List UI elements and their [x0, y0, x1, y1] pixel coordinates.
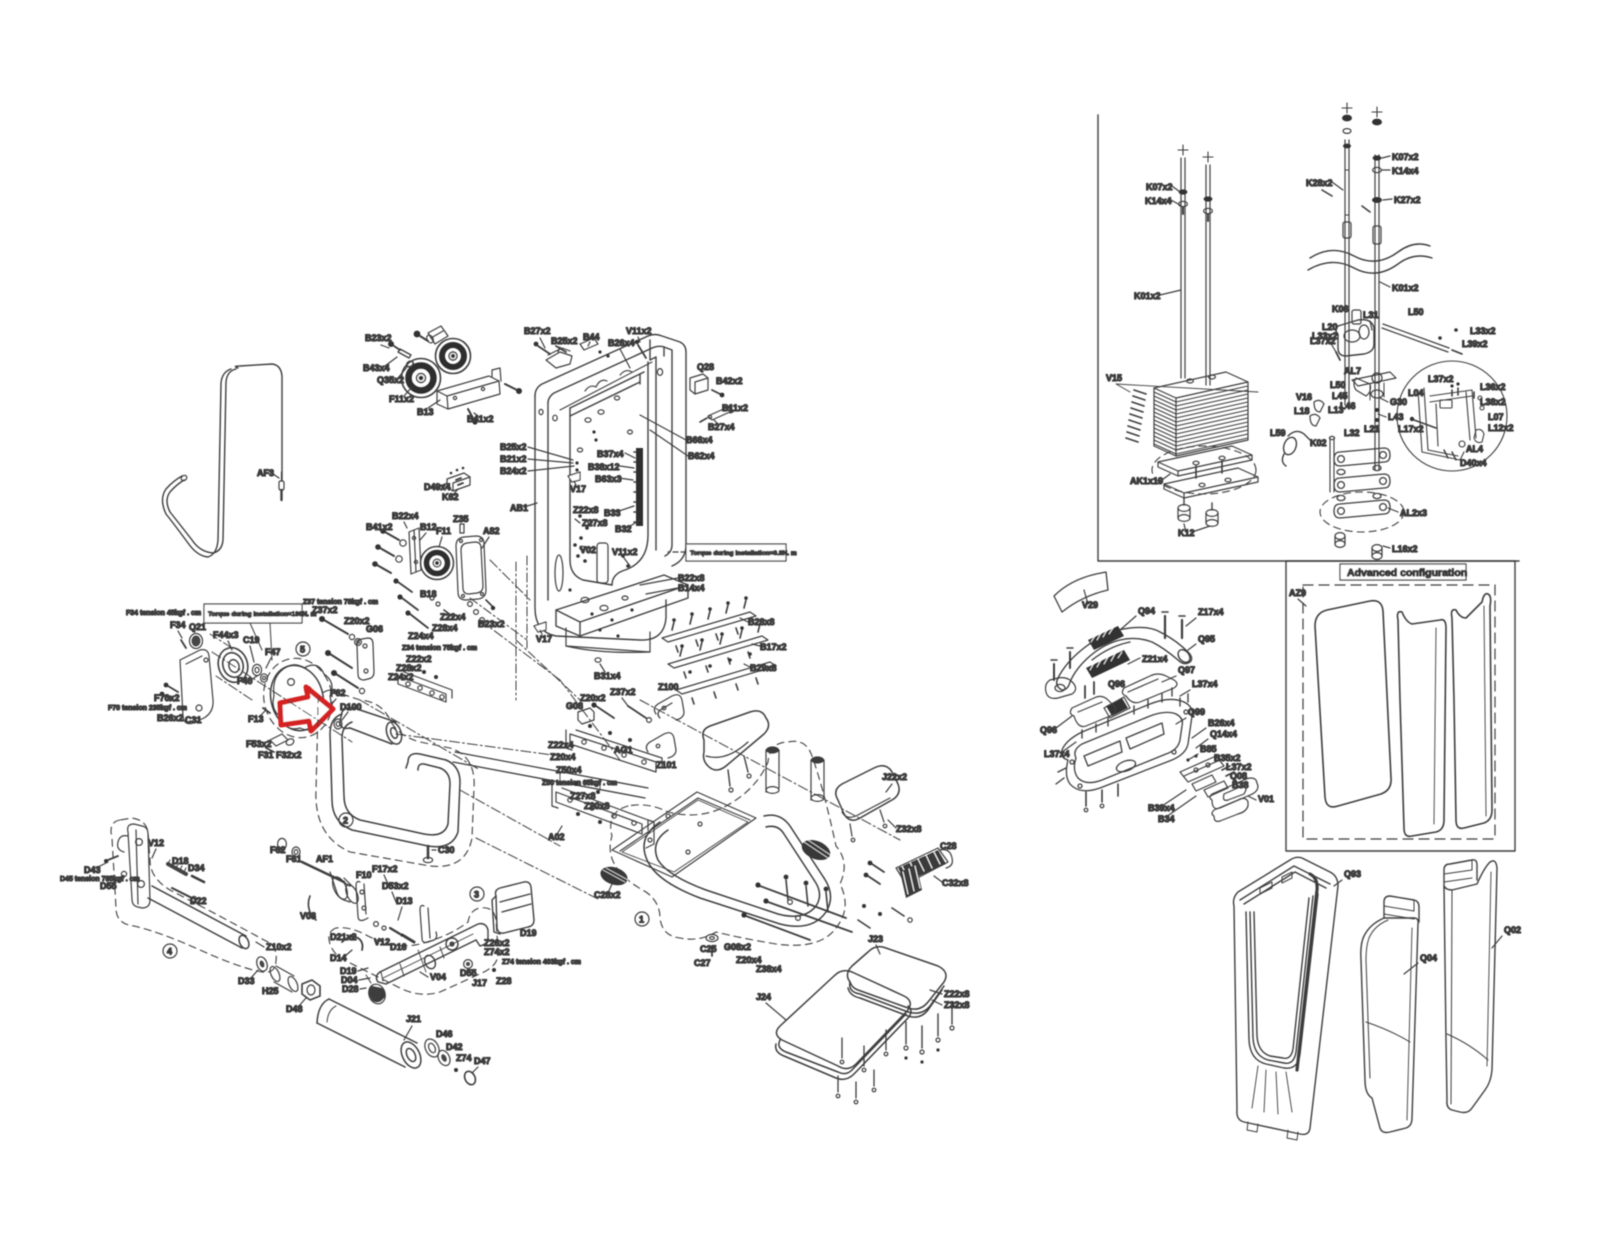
- svg-text:Q97: Q97: [1178, 665, 1195, 675]
- svg-text:Q94: Q94: [1138, 606, 1155, 616]
- svg-text:AF1: AF1: [316, 854, 333, 864]
- svg-text:Q95: Q95: [1198, 634, 1215, 644]
- svg-text:F11x2: F11x2: [389, 394, 414, 404]
- svg-text:V17: V17: [536, 634, 552, 644]
- svg-text:L36x2: L36x2: [1480, 382, 1506, 392]
- svg-text:Q04: Q04: [1420, 953, 1437, 963]
- svg-text:AL4: AL4: [1466, 444, 1483, 454]
- svg-text:C28x2: C28x2: [594, 890, 621, 900]
- svg-text:F62: F62: [270, 845, 286, 855]
- svg-text:Q14x4: Q14x4: [1210, 729, 1237, 739]
- svg-text:J24: J24: [756, 992, 771, 1002]
- svg-text:L04: L04: [1408, 388, 1424, 398]
- svg-text:L39x2: L39x2: [1462, 339, 1488, 349]
- svg-text:B14x4: B14x4: [678, 583, 705, 593]
- svg-text:K12: K12: [1178, 528, 1195, 538]
- svg-text:V17: V17: [570, 484, 586, 494]
- svg-text:G08x2: G08x2: [724, 942, 751, 952]
- svg-text:K27x2: K27x2: [1394, 195, 1421, 205]
- svg-text:Z27x8: Z27x8: [570, 791, 596, 801]
- svg-text:K02: K02: [1310, 438, 1327, 448]
- svg-text:AG1: AG1: [614, 745, 633, 755]
- svg-text:B66x4: B66x4: [686, 435, 713, 445]
- svg-text:B23x2: B23x2: [365, 333, 392, 343]
- svg-text:D22: D22: [190, 896, 207, 906]
- svg-text:L43: L43: [1388, 412, 1404, 422]
- svg-text:B25x2: B25x2: [551, 336, 578, 346]
- svg-text:B38x12: B38x12: [588, 462, 620, 472]
- svg-text:B28x8: B28x8: [748, 617, 775, 627]
- svg-text:F34: F34: [170, 620, 186, 630]
- svg-text:F40: F40: [237, 676, 253, 686]
- svg-text:AK1x19: AK1x19: [1130, 476, 1163, 486]
- svg-text:AB1: AB1: [510, 503, 528, 513]
- svg-text:B34: B34: [1158, 814, 1175, 824]
- svg-text:Torque during installation=0.8: Torque during installation=0.8N. m: [690, 550, 797, 557]
- svg-text:J17: J17: [472, 978, 487, 988]
- svg-text:Q96: Q96: [1108, 679, 1125, 689]
- svg-text:K07x2: K07x2: [1146, 182, 1173, 192]
- svg-text:L21: L21: [1364, 424, 1380, 434]
- svg-text:D46: D46: [436, 1029, 453, 1039]
- svg-text:4: 4: [167, 947, 172, 957]
- svg-text:AL7: AL7: [1344, 366, 1361, 376]
- svg-text:C31: C31: [185, 715, 202, 725]
- svg-text:Z38x4: Z38x4: [756, 964, 782, 974]
- svg-text:B41x2: B41x2: [366, 522, 393, 532]
- svg-text:K14x4: K14x4: [1145, 196, 1172, 206]
- svg-text:B21x2: B21x2: [500, 454, 527, 464]
- svg-text:V02: V02: [580, 545, 596, 555]
- svg-text:Q93: Q93: [1344, 869, 1361, 879]
- svg-text:K01x2: K01x2: [1392, 283, 1419, 293]
- svg-text:B27x4: B27x4: [708, 422, 735, 432]
- svg-text:B42x2: B42x2: [716, 376, 743, 386]
- svg-text:B37x4: B37x4: [597, 449, 624, 459]
- svg-text:Z35: Z35: [453, 514, 469, 524]
- svg-text:V12: V12: [148, 838, 164, 848]
- svg-text:D42: D42: [446, 1042, 463, 1052]
- svg-text:L37x4: L37x4: [1044, 749, 1070, 759]
- svg-text:F70x2: F70x2: [154, 693, 180, 703]
- svg-text:H25: H25: [262, 986, 279, 996]
- svg-text:K01x2: K01x2: [1134, 291, 1161, 301]
- svg-text:Z20x8: Z20x8: [584, 801, 610, 811]
- svg-text:V01: V01: [1258, 794, 1274, 804]
- svg-text:K07x2: K07x2: [1392, 152, 1419, 162]
- svg-text:K28x2: K28x2: [1306, 178, 1333, 188]
- svg-text:AL2x3: AL2x3: [1400, 508, 1427, 518]
- svg-text:B22x4: B22x4: [392, 511, 419, 521]
- svg-text:Z27x8: Z27x8: [582, 518, 608, 528]
- svg-text:Z24x2: Z24x2: [388, 672, 414, 682]
- svg-text:C30: C30: [438, 845, 455, 855]
- svg-text:Q02: Q02: [1504, 925, 1521, 935]
- svg-text:Z28x4: Z28x4: [432, 623, 458, 633]
- svg-text:B38: B38: [1232, 780, 1249, 790]
- svg-text:L50: L50: [1330, 380, 1346, 390]
- svg-text:L16x2: L16x2: [1392, 544, 1418, 554]
- svg-text:5: 5: [300, 645, 305, 655]
- svg-text:B27x2: B27x2: [524, 326, 551, 336]
- svg-text:L13: L13: [1328, 405, 1344, 415]
- svg-text:D21x2: D21x2: [330, 932, 357, 942]
- svg-text:Z28: Z28: [496, 976, 512, 986]
- svg-text:Z50x4: Z50x4: [556, 765, 582, 775]
- svg-text:D13: D13: [396, 896, 413, 906]
- svg-text:B33: B33: [604, 508, 621, 518]
- svg-text:K06: K06: [1332, 304, 1349, 314]
- svg-text:Z74: Z74: [456, 1053, 472, 1063]
- svg-text:B26x4: B26x4: [608, 338, 635, 348]
- svg-text:G06: G06: [366, 624, 383, 634]
- svg-text:L37x4: L37x4: [1192, 679, 1218, 689]
- svg-text:D19: D19: [520, 928, 537, 938]
- svg-text:D18: D18: [172, 856, 189, 866]
- svg-text:L31: L31: [1363, 310, 1379, 320]
- svg-text:Q96: Q96: [1040, 725, 1057, 735]
- svg-text:B31x4: B31x4: [594, 671, 621, 681]
- svg-text:Torque during installation=180: Torque during installation=180N. m: [208, 611, 317, 618]
- svg-text:B26x2: B26x2: [157, 713, 184, 723]
- svg-text:D40x4: D40x4: [1460, 458, 1487, 468]
- svg-text:V11x2: V11x2: [612, 547, 638, 557]
- svg-text:B26x4: B26x4: [1208, 718, 1235, 728]
- svg-text:J21: J21: [406, 1014, 421, 1024]
- svg-text:Z100: Z100: [658, 682, 679, 692]
- svg-text:L37x2: L37x2: [1428, 374, 1454, 384]
- svg-text:Z32x8: Z32x8: [944, 1000, 970, 1010]
- svg-text:B22x8: B22x8: [678, 573, 705, 583]
- svg-text:F17x2: F17x2: [372, 864, 398, 874]
- svg-text:Z24x4: Z24x4: [408, 631, 434, 641]
- svg-text:B29x8: B29x8: [750, 663, 777, 673]
- svg-text:D47: D47: [474, 1056, 491, 1066]
- svg-text:2: 2: [343, 816, 348, 826]
- svg-text:B39x4: B39x4: [1148, 803, 1175, 813]
- svg-text:L45: L45: [1332, 391, 1348, 401]
- svg-text:B41x2: B41x2: [467, 414, 494, 424]
- svg-text:L07: L07: [1488, 412, 1504, 422]
- svg-text:B18: B18: [420, 589, 437, 599]
- svg-text:L20: L20: [1322, 322, 1338, 332]
- svg-text:3: 3: [474, 890, 479, 900]
- svg-text:Z74x2: Z74x2: [484, 947, 510, 957]
- svg-text:V29: V29: [1082, 600, 1098, 610]
- svg-text:L38x2: L38x2: [1480, 397, 1506, 407]
- svg-text:V04: V04: [430, 972, 446, 982]
- svg-text:J22x2: J22x2: [882, 772, 907, 782]
- svg-text:D28: D28: [342, 984, 359, 994]
- svg-text:V11x2: V11x2: [626, 326, 652, 336]
- svg-text:Z10x2: Z10x2: [266, 942, 292, 952]
- svg-text:Z20x4: Z20x4: [550, 752, 576, 762]
- svg-text:B12: B12: [420, 522, 437, 532]
- svg-text:F11: F11: [436, 526, 451, 536]
- svg-text:F61: F61: [286, 854, 302, 864]
- svg-text:Z32x8: Z32x8: [896, 824, 922, 834]
- svg-text:B23x2: B23x2: [478, 619, 505, 629]
- svg-text:L32: L32: [1344, 428, 1360, 438]
- svg-text:C28: C28: [940, 841, 957, 851]
- svg-text:B43x4: B43x4: [363, 363, 390, 373]
- svg-text:L50: L50: [1408, 307, 1424, 317]
- svg-text:F31 F32x2: F31 F32x2: [258, 750, 302, 760]
- svg-text:K62: K62: [442, 492, 459, 502]
- svg-text:D14: D14: [330, 953, 347, 963]
- svg-text:C32x8: C32x8: [942, 878, 969, 888]
- svg-text:B62x4: B62x4: [688, 451, 715, 461]
- svg-text:D34: D34: [188, 863, 205, 873]
- svg-text:Z34 tension 75kgf . cm: Z34 tension 75kgf . cm: [402, 645, 477, 652]
- svg-text:J23: J23: [868, 934, 883, 944]
- svg-text:F10: F10: [356, 870, 372, 880]
- svg-text:Q21: Q21: [189, 622, 206, 632]
- svg-text:B44: B44: [583, 332, 600, 342]
- svg-text:AZ9: AZ9: [1289, 588, 1306, 598]
- svg-text:Z37x2: Z37x2: [610, 687, 636, 697]
- svg-text:V15: V15: [1106, 373, 1122, 383]
- svg-text:B17x2: B17x2: [760, 642, 787, 652]
- svg-text:Q99: Q99: [1188, 707, 1205, 717]
- svg-text:B32: B32: [615, 524, 632, 534]
- svg-text:F70 tension 235kgf . cm: F70 tension 235kgf . cm: [108, 705, 187, 712]
- svg-text:L18: L18: [1294, 406, 1310, 416]
- svg-text:D53x2: D53x2: [382, 881, 409, 891]
- svg-text:F34 tension 45kgf . cm: F34 tension 45kgf . cm: [126, 610, 201, 617]
- svg-text:Z21x4: Z21x4: [1142, 654, 1168, 664]
- svg-text:L37x2: L37x2: [1310, 336, 1336, 346]
- svg-text:B25x2: B25x2: [500, 442, 527, 452]
- svg-text:Z37x2: Z37x2: [312, 605, 338, 615]
- svg-text:Z22x4: Z22x4: [440, 612, 466, 622]
- svg-text:Z22x8: Z22x8: [944, 989, 970, 999]
- svg-text:L59: L59: [1270, 428, 1286, 438]
- svg-text:B63x3: B63x3: [595, 474, 622, 484]
- svg-text:Z22x8: Z22x8: [573, 505, 599, 515]
- svg-text:Q28: Q28: [697, 362, 714, 372]
- svg-text:K14x4: K14x4: [1392, 166, 1419, 176]
- svg-text:D16: D16: [390, 942, 407, 952]
- svg-text:B13: B13: [417, 407, 434, 417]
- svg-text:V03: V03: [300, 911, 316, 921]
- svg-text:Z74 tension 403kgf . cm: Z74 tension 403kgf . cm: [502, 959, 581, 966]
- svg-text:A02: A02: [548, 832, 565, 842]
- svg-text:C19: C19: [243, 635, 260, 645]
- svg-text:Z50 tension 65kgf . cm: Z50 tension 65kgf . cm: [542, 780, 617, 787]
- svg-text:Z17x4: Z17x4: [1198, 607, 1224, 617]
- svg-text:Z20x2: Z20x2: [580, 693, 606, 703]
- svg-text:Advanced configuration: Advanced configuration: [1347, 567, 1467, 579]
- svg-text:L33x2: L33x2: [1470, 326, 1496, 336]
- svg-text:F62: F62: [330, 688, 346, 698]
- svg-text:B24x2: B24x2: [500, 466, 527, 476]
- svg-text:B11x2: B11x2: [722, 403, 748, 413]
- svg-text:F47: F47: [265, 647, 281, 657]
- svg-text:F53x2: F53x2: [246, 739, 272, 749]
- svg-text:1: 1: [639, 915, 644, 925]
- svg-text:V16: V16: [1296, 392, 1312, 402]
- svg-text:L17x2: L17x2: [1398, 424, 1424, 434]
- svg-text:Z101: Z101: [656, 760, 677, 770]
- svg-text:C27: C27: [694, 958, 711, 968]
- svg-text:C25: C25: [700, 944, 717, 954]
- svg-text:L12x2: L12x2: [1488, 423, 1514, 433]
- svg-text:Z22x4: Z22x4: [548, 740, 574, 750]
- svg-text:A82: A82: [483, 526, 500, 536]
